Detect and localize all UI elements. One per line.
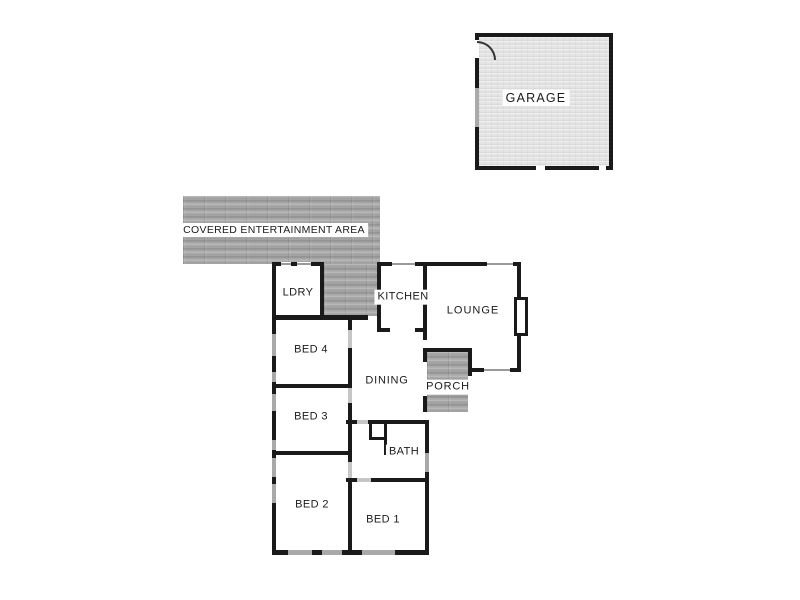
wall [320, 262, 324, 319]
window [272, 484, 276, 503]
room-label-bed1: BED 1 [363, 513, 403, 528]
garage-panel-joint [536, 166, 545, 170]
window [362, 550, 395, 555]
wall [272, 315, 368, 320]
deck-entertainment-ext [324, 264, 377, 316]
room-label-bed4: BED 4 [291, 343, 331, 358]
window [322, 550, 342, 555]
room-label-lounge: LOUNGE [444, 304, 502, 319]
window [272, 334, 276, 356]
door [348, 388, 352, 403]
door [348, 462, 352, 478]
window [392, 262, 415, 266]
door [357, 478, 371, 482]
room-label-ldry: LDRY [280, 286, 317, 301]
window [484, 368, 510, 372]
room-label-porch: PORCH [423, 380, 473, 395]
window [272, 394, 276, 411]
room-label-bed2: BED 2 [292, 498, 332, 513]
wall [348, 478, 352, 555]
room-label-covered-entertainment-area: COVERED ENTERTAINMENT AREA [180, 223, 368, 237]
room-label-garage: GARAGE [503, 90, 570, 106]
wall [348, 348, 352, 388]
window [272, 458, 276, 477]
room-label-kitchen: KITCHEN [374, 290, 431, 305]
wall [272, 451, 352, 455]
floor-plan: GARAGE COVERED ENTERTAINMENT AREA LDRY K… [0, 0, 800, 600]
wall [377, 328, 390, 332]
wall [348, 315, 352, 330]
bay-window [514, 297, 528, 336]
room-label-bed3: BED 3 [291, 410, 331, 425]
garage-window [475, 88, 479, 127]
door [357, 420, 368, 424]
wall [272, 384, 352, 388]
window [281, 262, 291, 266]
wall [423, 348, 472, 352]
room-label-dining: DINING [362, 374, 411, 389]
window [288, 550, 312, 555]
wall [425, 420, 429, 555]
window [272, 440, 276, 450]
garage-panel-joint [599, 166, 606, 170]
door [348, 330, 352, 348]
room-label-bath: BATH [386, 445, 422, 460]
window [425, 453, 429, 472]
window [297, 262, 311, 266]
window [487, 262, 513, 266]
window [272, 372, 276, 382]
